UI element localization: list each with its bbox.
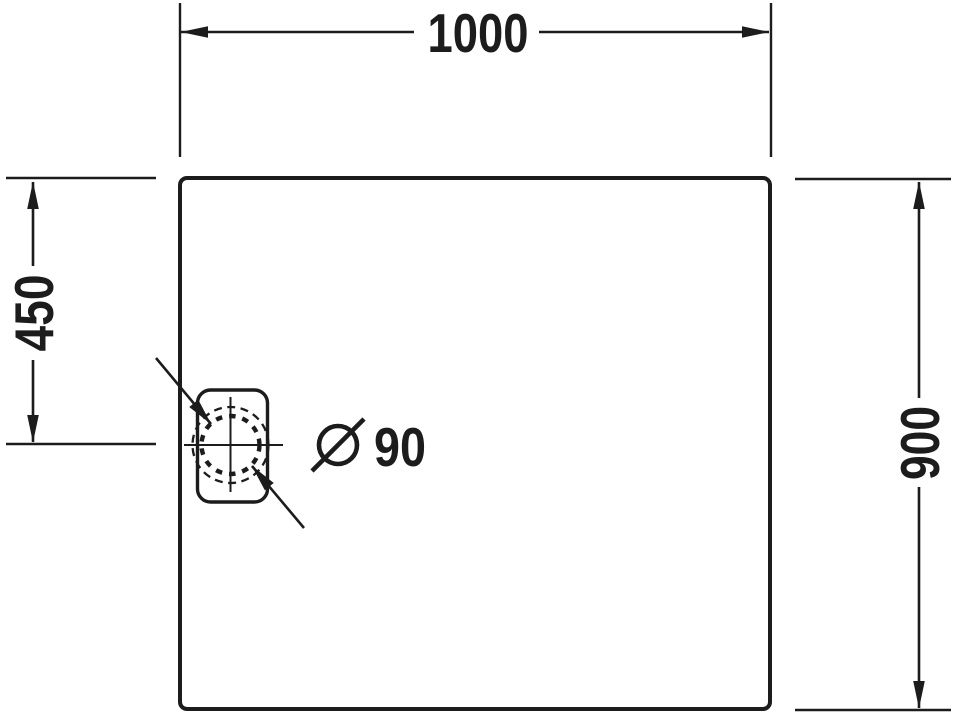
diameter-symbol-icon (312, 419, 364, 471)
drawing-canvas: 1000 450 900 90 (0, 0, 955, 717)
dim-depth-label: 900 (889, 406, 951, 480)
drain-diameter-label: 90 (312, 416, 426, 478)
drain-diameter-value: 90 (374, 416, 426, 478)
dim-offset-label: 450 (3, 275, 65, 352)
dim-width-label: 1000 (428, 2, 529, 64)
drain-diameter-leader-lower (252, 466, 304, 528)
drawing-page: 1000 450 900 90 (0, 0, 955, 717)
